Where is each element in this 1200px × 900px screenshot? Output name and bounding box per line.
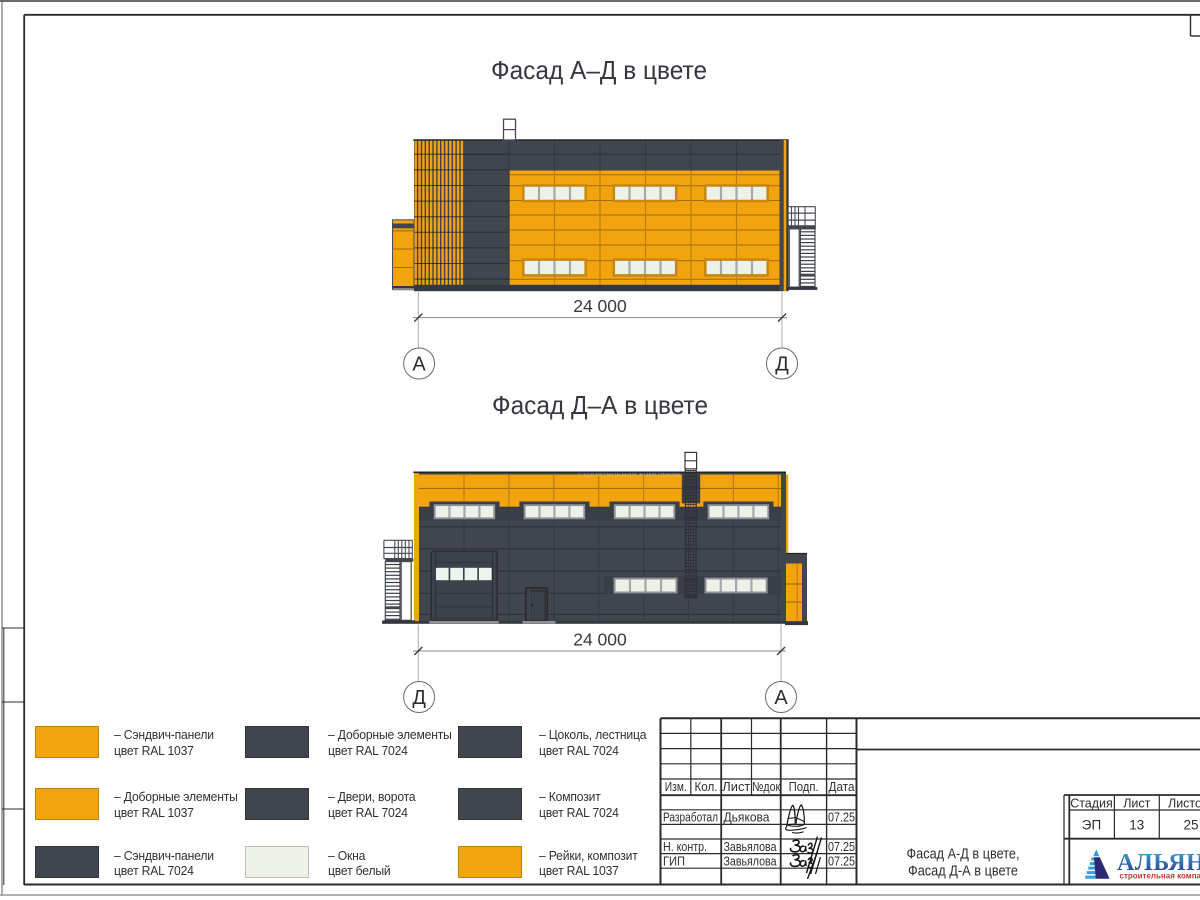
svg-text:Завьялова: Завьялова: [724, 840, 777, 854]
svg-text:07.25: 07.25: [828, 854, 855, 868]
svg-text:А: А: [774, 687, 788, 709]
svg-text:Изм.: Изм.: [665, 779, 687, 794]
svg-text:Разработал: Разработал: [663, 811, 718, 825]
svg-text:07.25: 07.25: [828, 811, 855, 825]
svg-text:ЭП: ЭП: [1082, 818, 1101, 833]
svg-text:Кол.: Кол.: [695, 779, 718, 794]
svg-text:25: 25: [1183, 818, 1198, 833]
svg-text:Листов: Листов: [1168, 797, 1200, 811]
svg-text:строительная компания: строительная компания: [1120, 871, 1200, 880]
svg-text:24 000: 24 000: [573, 630, 627, 650]
svg-text:Дьякова: Дьякова: [724, 811, 770, 825]
svg-text:07.25: 07.25: [828, 840, 855, 854]
svg-text:Лист: Лист: [1123, 797, 1150, 811]
svg-text:Н. контр.: Н. контр.: [663, 840, 707, 854]
svg-text:Стадия: Стадия: [1070, 797, 1113, 811]
svg-text:строительная компания: строительная компания: [578, 469, 680, 479]
svg-text:Фасад Д-А в цвете: Фасад Д-А в цвете: [908, 864, 1018, 880]
svg-text:Подп.: Подп.: [789, 779, 819, 794]
svg-text:Д: Д: [775, 354, 789, 376]
svg-text:№док: №док: [752, 779, 780, 794]
svg-text:А: А: [412, 354, 426, 376]
svg-text:Д: Д: [412, 687, 426, 709]
svg-text:Завьялова: Завьялова: [724, 854, 777, 868]
svg-text:ГИП: ГИП: [663, 854, 685, 868]
svg-text:Лист: Лист: [722, 779, 750, 794]
svg-text:13: 13: [1129, 818, 1144, 833]
svg-text:Дата: Дата: [829, 779, 856, 794]
svg-text:24 000: 24 000: [573, 296, 627, 316]
svg-text:Фасад А-Д в цвете,: Фасад А-Д в цвете,: [907, 847, 1020, 863]
